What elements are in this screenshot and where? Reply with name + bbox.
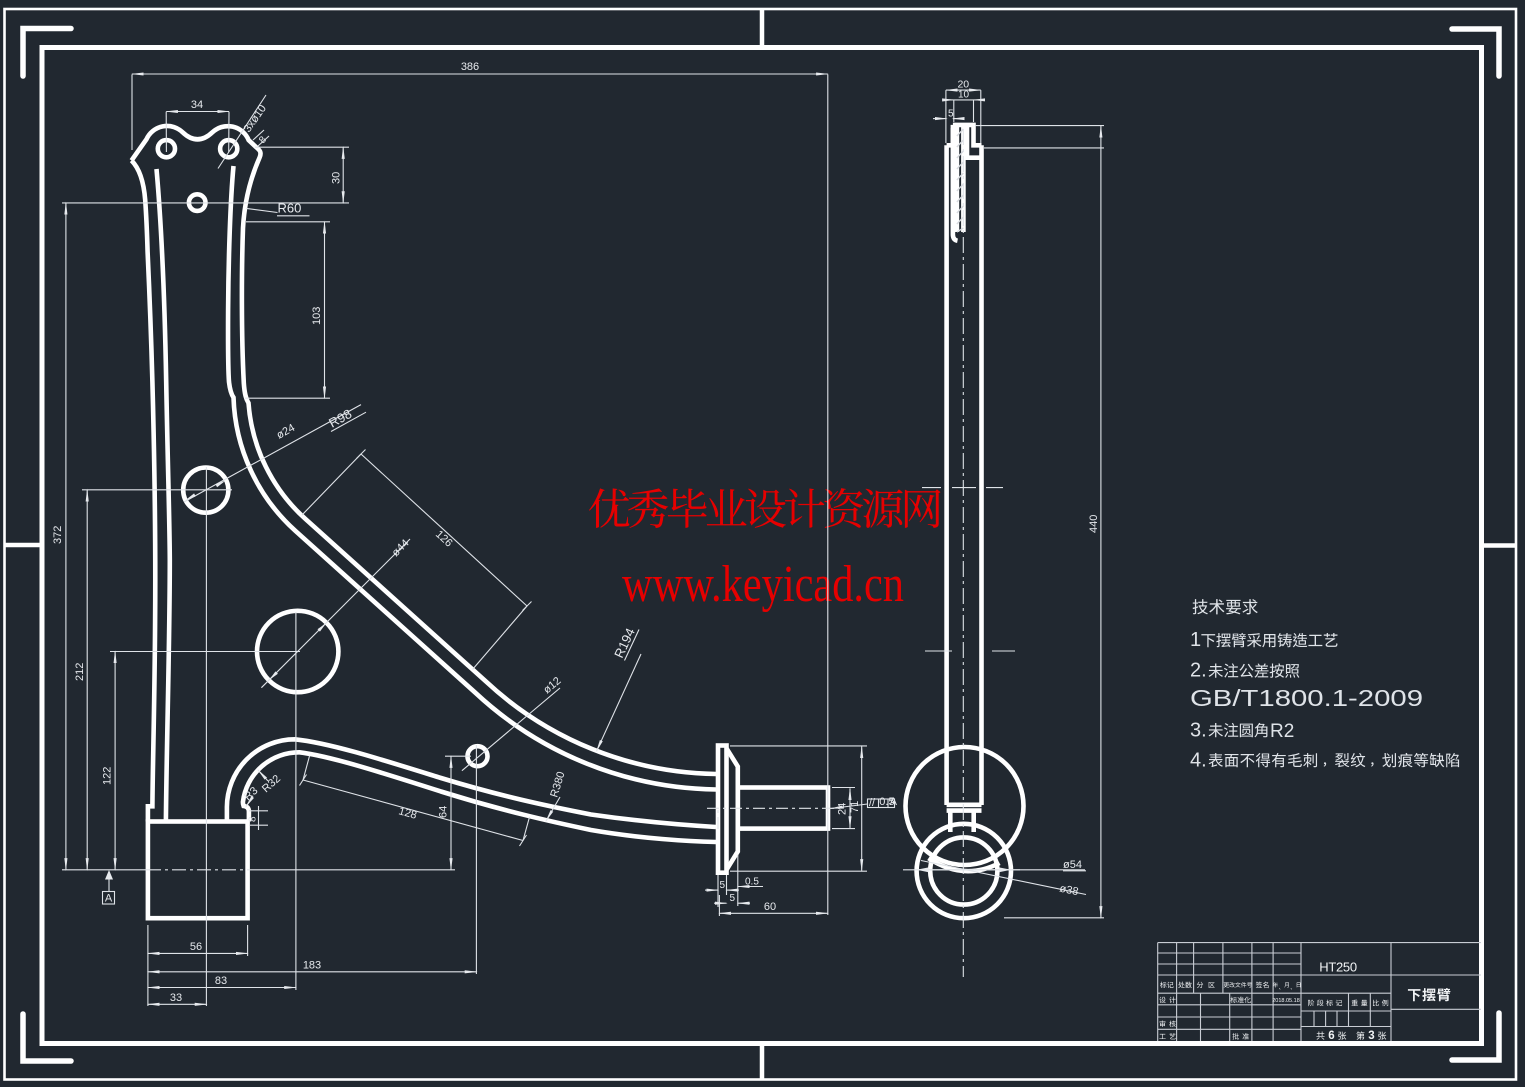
svg-text:60: 60: [764, 901, 776, 913]
svg-text:GB/T1800.1-2009: GB/T1800.1-2009: [1190, 685, 1423, 711]
svg-text:3: 3: [1368, 1030, 1374, 1042]
svg-text:103: 103: [311, 307, 323, 325]
svg-text:R60: R60: [278, 201, 302, 216]
svg-text:5: 5: [720, 880, 726, 891]
svg-text:71: 71: [849, 801, 861, 813]
svg-text:386: 386: [461, 61, 479, 73]
svg-text:1: 1: [1190, 629, 1201, 651]
svg-text:183: 183: [303, 960, 321, 972]
svg-text:8: 8: [248, 816, 259, 822]
svg-text:24: 24: [837, 803, 849, 815]
svg-text:A: A: [890, 796, 898, 808]
svg-text:440: 440: [1088, 515, 1100, 533]
svg-text:0.5: 0.5: [745, 877, 759, 888]
svg-text:6: 6: [1328, 1030, 1334, 1042]
svg-text:4.: 4.: [1190, 750, 1207, 772]
svg-text:122: 122: [102, 767, 114, 785]
svg-text:212: 212: [74, 663, 86, 681]
svg-text:ø54: ø54: [1063, 859, 1082, 871]
svg-text:64: 64: [438, 806, 450, 818]
svg-text:30: 30: [331, 172, 343, 184]
svg-text:R2: R2: [1270, 721, 1294, 742]
svg-text:3.: 3.: [1190, 720, 1207, 742]
svg-text:34: 34: [191, 99, 203, 111]
svg-text:56: 56: [190, 941, 202, 953]
svg-text:5: 5: [730, 893, 736, 904]
svg-text:5: 5: [948, 109, 954, 120]
svg-text:83: 83: [215, 975, 227, 987]
svg-text:33: 33: [170, 992, 182, 1004]
svg-text:A: A: [105, 893, 113, 905]
svg-text:372: 372: [52, 526, 64, 544]
svg-text:10: 10: [958, 90, 970, 101]
svg-text:www.keyicad.cn: www.keyicad.cn: [622, 556, 904, 613]
svg-text:HT250: HT250: [1319, 960, 1357, 975]
svg-text:2018.05.18: 2018.05.18: [1272, 998, 1300, 1004]
svg-text://: //: [869, 797, 876, 809]
svg-text:2.: 2.: [1190, 660, 1207, 682]
